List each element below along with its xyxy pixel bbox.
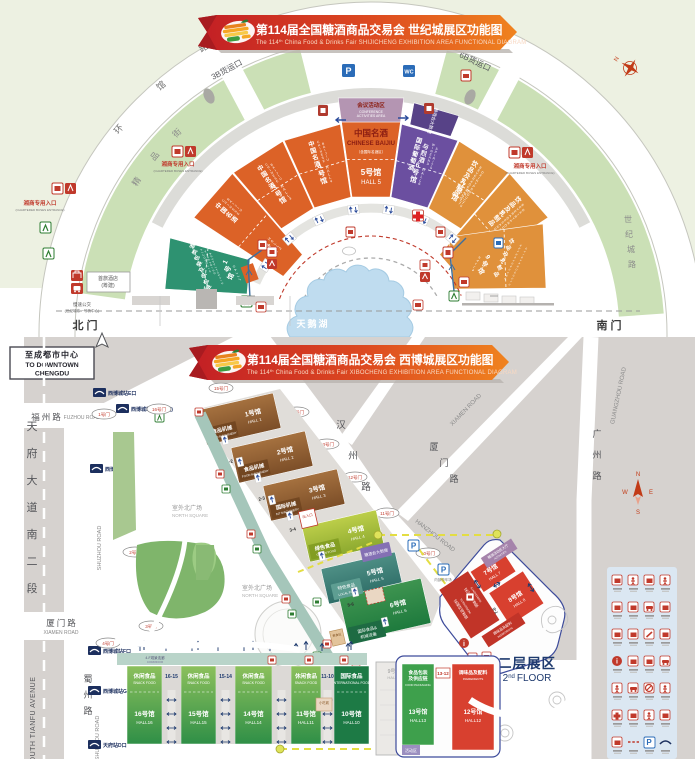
svg-text:北 门: 北 门 xyxy=(72,318,97,332)
svg-text:州: 州 xyxy=(592,450,601,460)
svg-text:段: 段 xyxy=(27,581,38,595)
svg-text:CORRIDOR: CORRIDOR xyxy=(147,660,164,664)
svg-text:门: 门 xyxy=(439,457,448,468)
svg-text:5号馆: 5号馆 xyxy=(361,167,381,177)
svg-text:HALL13: HALL13 xyxy=(410,718,427,723)
svg-text:11-10: 11-10 xyxy=(321,674,334,680)
svg-text:HALL15: HALL15 xyxy=(190,720,207,725)
svg-text:路: 路 xyxy=(592,470,601,481)
svg-text:福州路: 福州路 xyxy=(31,412,63,422)
svg-text:大: 大 xyxy=(27,473,38,487)
svg-text:The 114th China Food & Drinks: The 114th China Food & Drinks Fair XIBOC… xyxy=(247,368,517,376)
svg-text:(筹建): (筹建) xyxy=(101,282,115,289)
svg-text:湘商专用入口: 湘商专用入口 xyxy=(161,160,194,168)
svg-text:i: i xyxy=(616,659,618,666)
svg-text:XIAMEN ROAD: XIAMEN ROAD xyxy=(43,630,78,636)
svg-text:路: 路 xyxy=(628,259,636,269)
svg-text:P: P xyxy=(441,566,447,575)
svg-text:W: W xyxy=(622,490,628,496)
svg-text:13-12: 13-12 xyxy=(437,671,449,676)
svg-text:P: P xyxy=(411,542,417,551)
svg-text:广: 广 xyxy=(592,428,601,439)
svg-text:1号门: 1号门 xyxy=(98,411,110,418)
svg-text:SNACK FOOD: SNACK FOOD xyxy=(187,681,210,685)
svg-text:NORTH SQUARE: NORTH SQUARE xyxy=(172,513,208,518)
svg-text:E: E xyxy=(649,490,653,496)
svg-text:会议活动区: 会议活动区 xyxy=(357,101,385,109)
svg-text:4号门: 4号门 xyxy=(102,640,114,647)
svg-text:休闲食品: 休闲食品 xyxy=(186,672,210,680)
svg-text:16号馆: 16号馆 xyxy=(134,709,155,718)
svg-text:16号门: 16号门 xyxy=(152,406,167,413)
svg-text:CHENGDU: CHENGDU xyxy=(35,371,69,378)
svg-text:道: 道 xyxy=(27,500,38,514)
svg-text:HALL14: HALL14 xyxy=(245,720,262,725)
svg-text:湘商专用入口: 湘商专用入口 xyxy=(23,199,56,207)
svg-text:至成都市中心: 至成都市中心 xyxy=(25,350,79,360)
svg-text:SECTION 2 SOUTH TIANFU AVENUE: SECTION 2 SOUTH TIANFU AVENUE xyxy=(30,677,37,759)
svg-text:（含国际名酒区）: （含国际名酒区） xyxy=(357,149,386,154)
svg-text:16-15: 16-15 xyxy=(165,674,178,680)
svg-text:室外北广场: 室外北广场 xyxy=(172,504,202,512)
svg-text:HALL11: HALL11 xyxy=(298,720,314,725)
svg-text:西博城站E口: 西博城站E口 xyxy=(108,390,136,397)
svg-text:二层展区: 二层展区 xyxy=(498,656,556,671)
svg-text:内部停车场: 内部停车场 xyxy=(434,577,452,582)
svg-text:纪: 纪 xyxy=(625,229,633,239)
svg-text:蜀: 蜀 xyxy=(83,674,92,684)
svg-text:厦门路: 厦门路 xyxy=(46,618,78,628)
svg-text:INGREDIENTS: INGREDIENTS xyxy=(463,677,484,681)
svg-text:世: 世 xyxy=(624,214,632,224)
svg-text:休闲食品: 休闲食品 xyxy=(241,672,265,680)
svg-text:15号馆: 15号馆 xyxy=(188,709,209,718)
svg-text:州: 州 xyxy=(348,451,358,462)
svg-text:15号门: 15号门 xyxy=(214,385,229,392)
svg-text:ACTIVITIES AREA: ACTIVITIES AREA xyxy=(357,114,386,118)
svg-text:i: i xyxy=(463,641,465,648)
svg-text:(CHARTERED BUSES ENTRANCE): (CHARTERED BUSES ENTRANCE) xyxy=(506,171,555,175)
svg-text:天鹅湖: 天鹅湖 xyxy=(296,318,329,329)
svg-text:CHINESE BAIJIU: CHINESE BAIJIU xyxy=(347,141,395,147)
svg-text:府: 府 xyxy=(27,446,38,460)
svg-text:二: 二 xyxy=(27,556,38,568)
svg-text:南: 南 xyxy=(27,528,38,541)
svg-text:SNACK FOOD: SNACK FOOD xyxy=(133,681,156,685)
svg-text:(CHARTERED BUSES ENTRANCE): (CHARTERED BUSES ENTRANCE) xyxy=(16,208,65,212)
svg-text:HALL 5: HALL 5 xyxy=(361,180,381,186)
svg-text:10号馆: 10号馆 xyxy=(341,709,362,718)
svg-text:HALL16: HALL16 xyxy=(136,720,153,725)
svg-text:休闲食品: 休闲食品 xyxy=(294,672,318,680)
svg-text:南 门: 南 门 xyxy=(596,318,621,332)
svg-text:厦: 厦 xyxy=(429,442,438,452)
svg-text:国际食品: 国际食品 xyxy=(340,672,363,680)
svg-text:FOOD PACKAGING: FOOD PACKAGING xyxy=(405,683,430,687)
svg-text:汉: 汉 xyxy=(336,420,346,431)
svg-text:第114届全国糖酒商品交易会 西博城展区功能图: 第114届全国糖酒商品交易会 西博城展区功能图 xyxy=(247,353,494,367)
svg-text:11号馆: 11号馆 xyxy=(296,709,316,718)
svg-text:及供应链: 及供应链 xyxy=(408,675,427,682)
svg-text:13号馆: 13号馆 xyxy=(409,708,428,716)
svg-text:14号馆: 14号馆 xyxy=(243,709,264,718)
svg-text:天: 天 xyxy=(27,421,38,433)
svg-text:WC: WC xyxy=(404,70,413,76)
svg-text:INTERNATIONAL FOOD: INTERNATIONAL FOOD xyxy=(333,681,371,685)
svg-text:15-14: 15-14 xyxy=(219,674,232,680)
svg-text:小吃城: 小吃城 xyxy=(319,700,329,705)
svg-text:The 114th China Food & Drinks: The 114th China Food & Drinks Fair SHIJI… xyxy=(256,38,526,46)
svg-text:路: 路 xyxy=(449,473,458,484)
svg-text:湘商专用入口: 湘商专用入口 xyxy=(513,162,546,170)
svg-text:SHUZHOU ROAD: SHUZHOU ROAD xyxy=(97,526,103,571)
svg-text:城: 城 xyxy=(627,245,635,254)
svg-text:慢速公交: 慢速公交 xyxy=(73,301,91,308)
svg-text:TO DOWNTOWN: TO DOWNTOWN xyxy=(25,362,78,369)
svg-text:天府站D口: 天府站D口 xyxy=(103,742,127,749)
svg-text:路: 路 xyxy=(361,481,371,493)
svg-text:HALL10: HALL10 xyxy=(343,720,360,725)
svg-text:N: N xyxy=(636,472,640,478)
svg-text:HALL12: HALL12 xyxy=(465,718,482,723)
svg-text:活动区: 活动区 xyxy=(405,747,417,753)
svg-text:路: 路 xyxy=(83,705,92,716)
svg-text:NORTH SQUARE: NORTH SQUARE xyxy=(242,593,278,598)
svg-text:食品包装: 食品包装 xyxy=(408,669,427,676)
svg-text:中国名酒: 中国名酒 xyxy=(354,128,389,138)
svg-text:SNACK FOOD: SNACK FOOD xyxy=(295,681,318,685)
svg-text:P: P xyxy=(345,66,351,76)
svg-text:11号门: 11号门 xyxy=(380,510,394,517)
svg-text:第114届全国糖酒商品交易会 世纪城展区功能图: 第114届全国糖酒商品交易会 世纪城展区功能图 xyxy=(256,23,503,37)
svg-text:首旅酒店: 首旅酒店 xyxy=(98,275,118,282)
svg-text:休闲食品: 休闲食品 xyxy=(132,672,156,680)
svg-text:室外北广场: 室外北广场 xyxy=(242,584,272,592)
svg-text:S: S xyxy=(636,510,640,516)
svg-text:SNACK FOOD: SNACK FOOD xyxy=(242,681,265,685)
svg-text:(CHARTERED BUSES ENTRANCE): (CHARTERED BUSES ENTRANCE) xyxy=(154,169,203,173)
svg-text:调味品及配料: 调味品及配料 xyxy=(459,669,488,676)
svg-text:SHUZHOU ROAD: SHUZHOU ROAD xyxy=(95,716,101,759)
svg-text:P: P xyxy=(646,738,652,747)
